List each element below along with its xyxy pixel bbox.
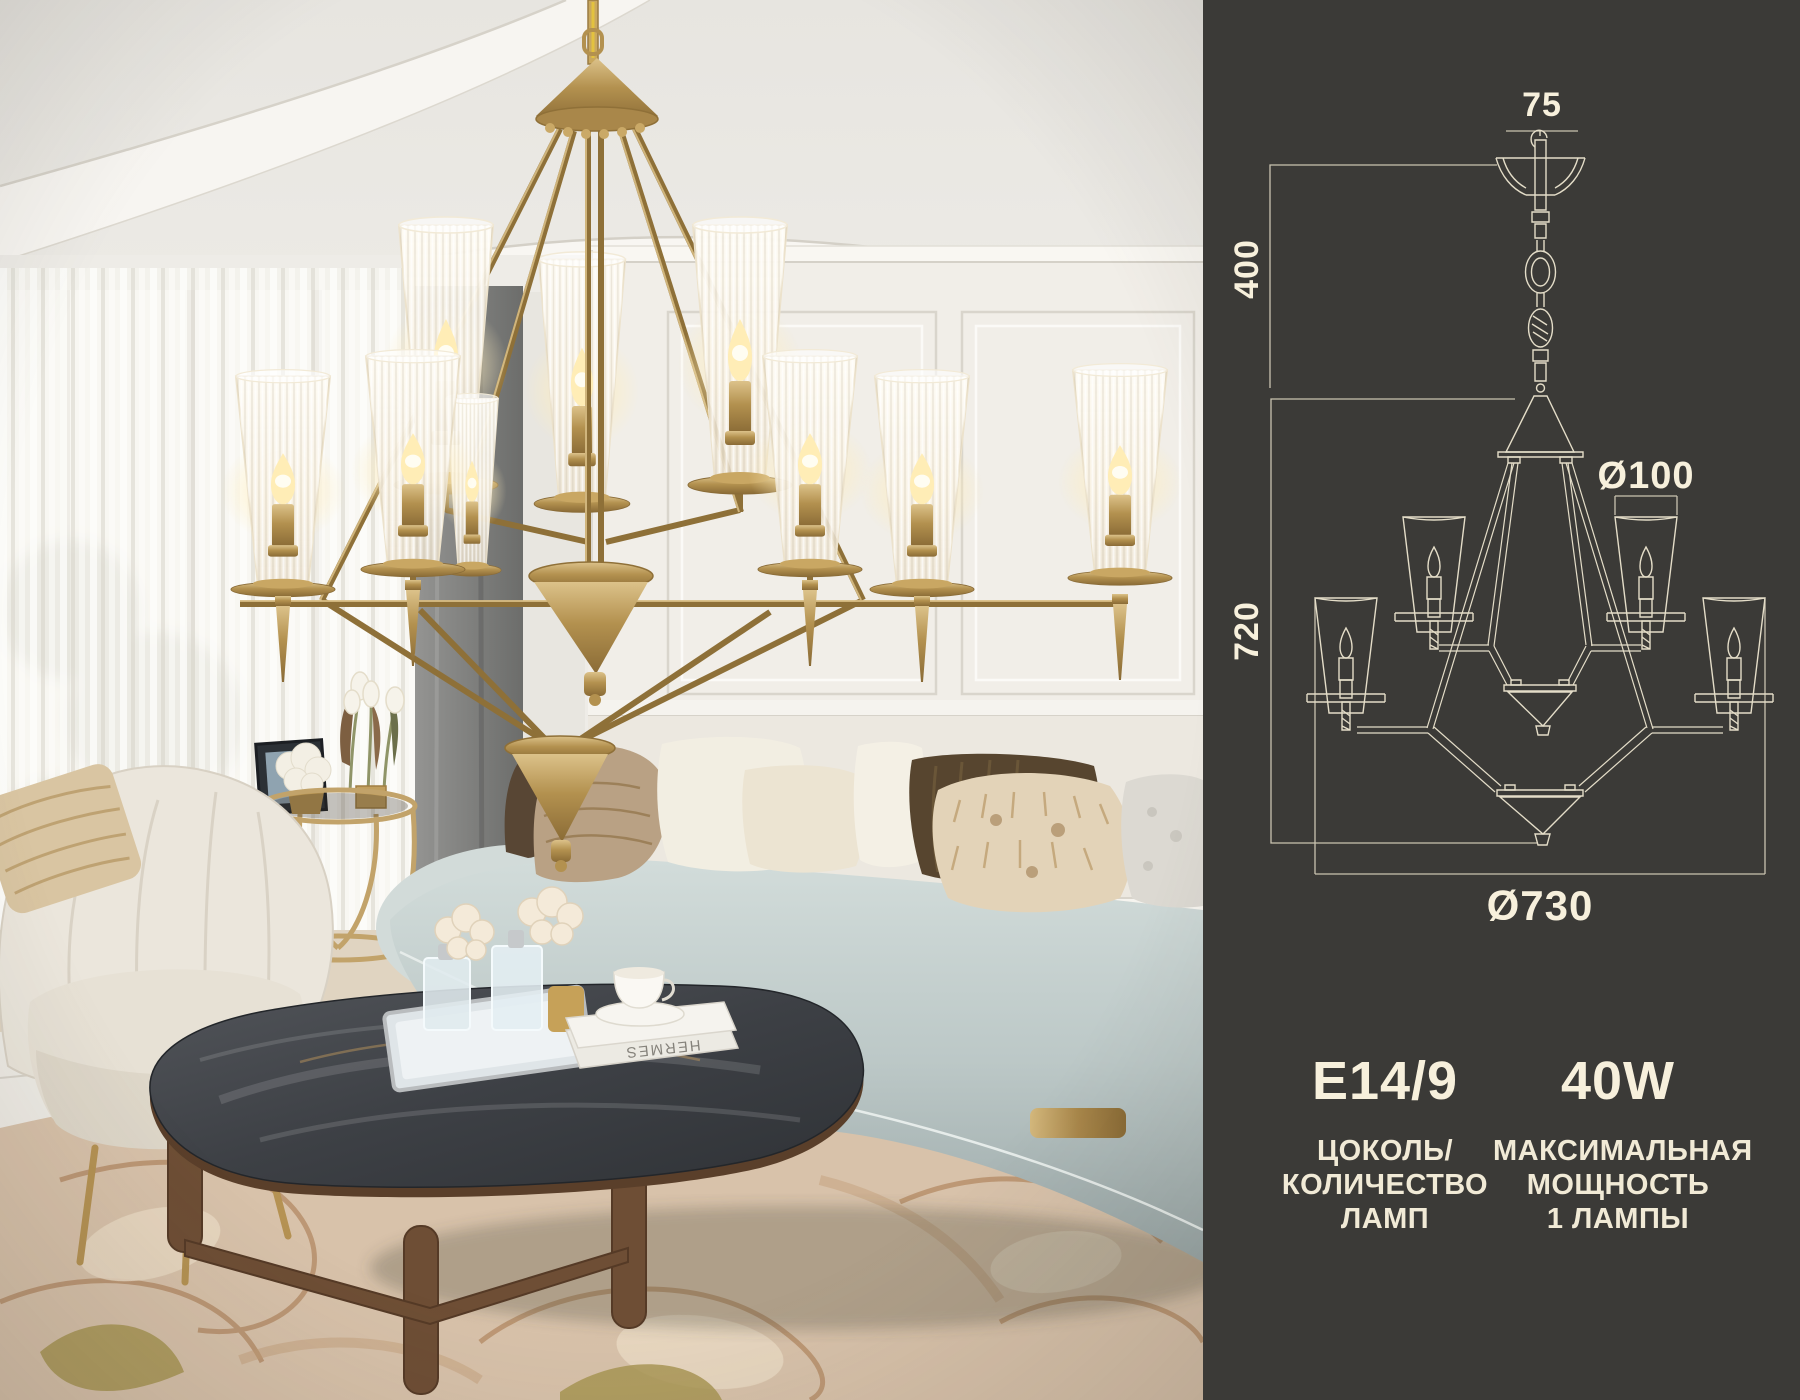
spec-panel: 75 400 720 Ø100 Ø730 E14/9 ЦОКОЛЬ/ КОЛИЧ… [1203,0,1800,1400]
lifestyle-photo: HERMES [0,0,1203,1400]
dim-suspension: 400 [1231,189,1263,349]
spec-socket-caption: ЦОКОЛЬ/ КОЛИЧЕСТВО ЛАМП [1260,1134,1510,1236]
dim-hook-width: 75 [1502,86,1582,125]
vignette [0,0,1203,1400]
photo-art: HERMES [0,0,1203,1400]
spec-power: 40W МАКСИМАЛЬНАЯ МОЩНОСТЬ 1 ЛАМПЫ [1493,1050,1743,1236]
spec-socket-value: E14/9 [1260,1050,1510,1112]
spec-power-value: 40W [1493,1050,1743,1112]
dim-shade: Ø100 [1576,455,1716,498]
spec-power-caption: МАКСИМАЛЬНАЯ МОЩНОСТЬ 1 ЛАМПЫ [1493,1134,1743,1236]
product-card: HERMES [0,0,1800,1400]
dimension-lines [1270,131,1765,874]
dim-body-height: 720 [1231,551,1263,711]
spec-socket: E14/9 ЦОКОЛЬ/ КОЛИЧЕСТВО ЛАМП [1260,1050,1510,1236]
dim-diameter: Ø730 [1450,882,1630,930]
